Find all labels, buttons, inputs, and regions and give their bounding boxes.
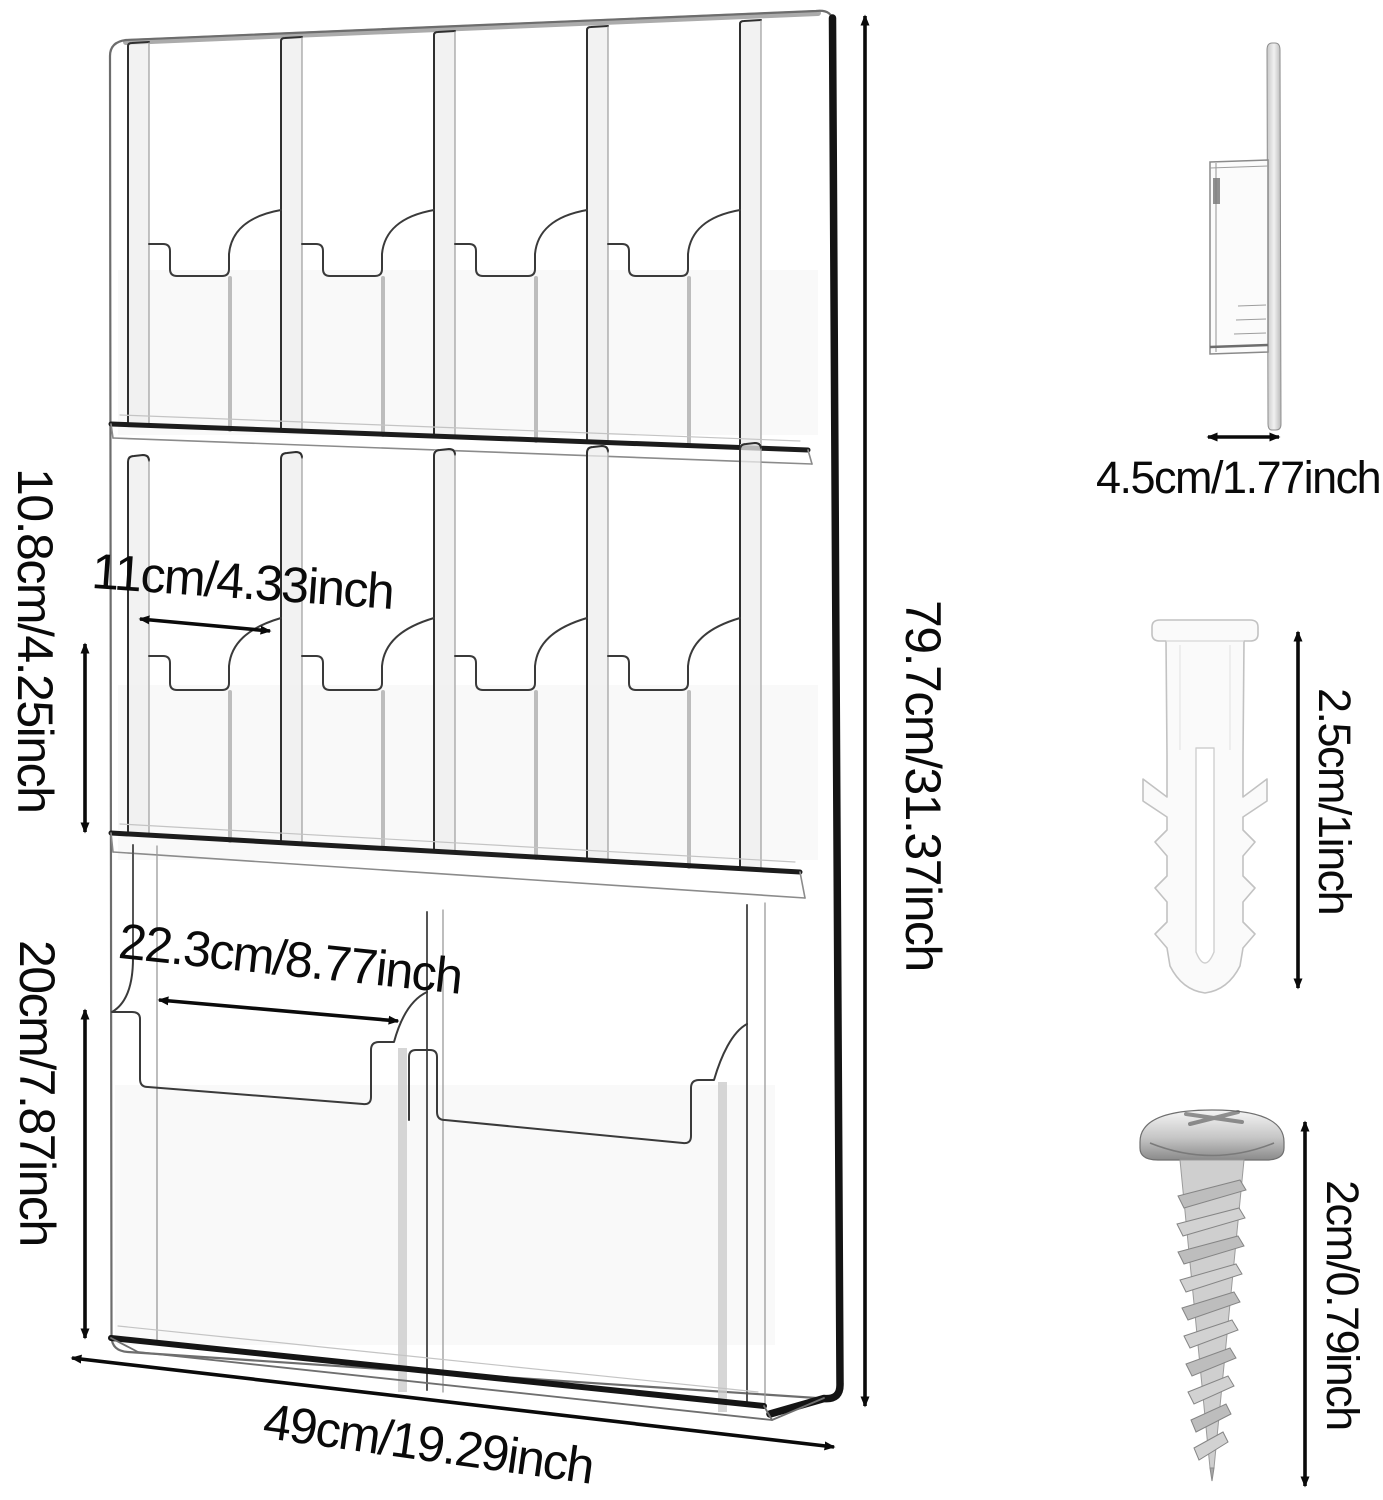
diagram-line-art <box>0 0 1383 1500</box>
label-anchor-length: 2.5cm/1inch <box>1308 688 1360 914</box>
brochure-holder-side-view <box>1210 43 1281 430</box>
wall-anchor <box>1143 620 1267 993</box>
arrow-large-pocket-width <box>159 1000 398 1021</box>
acrylic-tint <box>115 270 818 1345</box>
label-side-depth: 4.5cm/1.77inch <box>1096 452 1380 504</box>
arrow-small-pocket-width <box>140 619 270 631</box>
label-small-pocket-height: 10.8cm/4.25inch <box>6 468 64 812</box>
brochure-holder-front-view <box>110 11 840 1420</box>
label-screw-length: 2cm/0.79inch <box>1316 1180 1368 1430</box>
label-large-pocket-height: 20cm/7.87inch <box>8 940 66 1246</box>
screw <box>1140 1110 1284 1481</box>
product-diagram: 11cm/4.33inch 10.8cm/4.25inch 22.3cm/8.7… <box>0 0 1383 1500</box>
label-board-height: 79.7cm/31.37inch <box>894 600 952 971</box>
hanger-tab <box>1213 178 1220 204</box>
